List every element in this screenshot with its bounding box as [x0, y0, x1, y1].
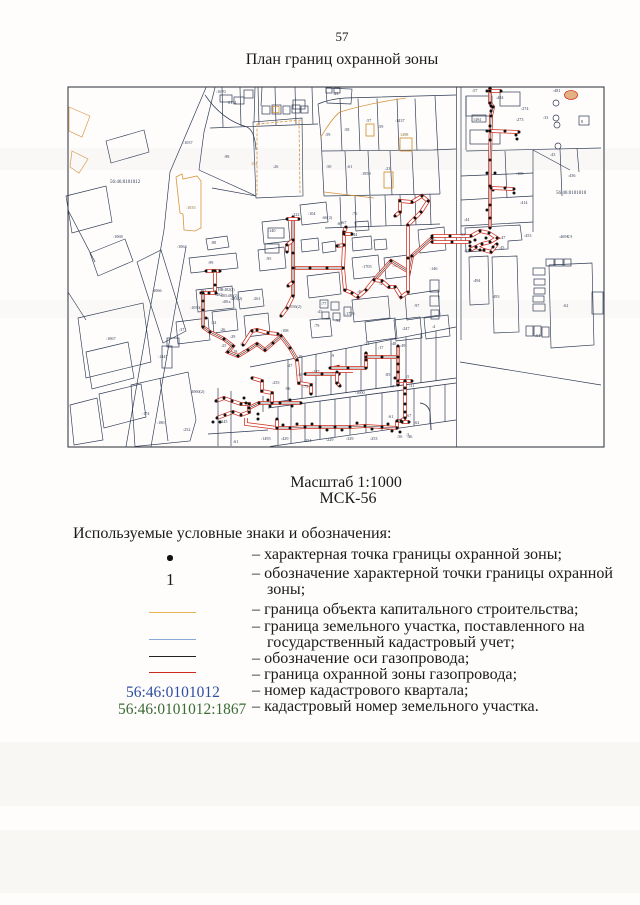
svg-text::33: :33 — [543, 115, 548, 120]
svg-text::180: :180 — [157, 420, 164, 425]
svg-text::66(2): :66(2) — [322, 215, 333, 220]
svg-text::273: :273 — [516, 117, 523, 122]
svg-text::56: :56 — [397, 434, 402, 439]
svg-text::24: :24 — [211, 320, 217, 325]
svg-text::252: :252 — [183, 427, 190, 432]
svg-text::65: :65 — [460, 232, 465, 237]
svg-text::414: :414 — [520, 200, 528, 205]
svg-text::146: :146 — [430, 266, 437, 271]
svg-text::7: :7 — [391, 384, 394, 389]
svg-text::9: :9 — [331, 353, 334, 358]
svg-text::1067: :1067 — [106, 336, 116, 341]
svg-text::95: :95 — [266, 256, 271, 261]
svg-text::9: :9 — [337, 243, 340, 248]
svg-text::481: :481 — [553, 88, 560, 93]
svg-text::5: :5 — [406, 374, 409, 379]
svg-text::1495: :1495 — [261, 436, 271, 441]
svg-text::40: :40 — [297, 372, 302, 377]
svg-text::59: :59 — [378, 124, 383, 129]
svg-text::453: :453 — [524, 233, 531, 238]
svg-text::58: :58 — [344, 127, 349, 132]
svg-text::108: :108 — [281, 328, 288, 333]
svg-text::47: :47 — [287, 363, 292, 368]
svg-text::484: :484 — [496, 95, 504, 100]
svg-text::456: :456 — [568, 173, 575, 178]
svg-text::429: :429 — [281, 436, 288, 441]
svg-text::31: :31 — [409, 383, 414, 388]
svg-text::79: :79 — [314, 323, 319, 328]
svg-text::99: :99 — [208, 260, 213, 265]
svg-text::44: :44 — [352, 232, 358, 237]
svg-text::1670: :1670 — [216, 89, 226, 94]
svg-text::1066: :1066 — [152, 288, 162, 293]
svg-text::229: :229 — [326, 437, 333, 442]
svg-text::43: :43 — [333, 91, 338, 96]
svg-text::61: :61 — [233, 439, 238, 444]
svg-text::59: :59 — [325, 132, 330, 137]
svg-text::24: :24 — [364, 341, 370, 346]
svg-text::104: :104 — [308, 211, 316, 216]
svg-text::49: :49 — [400, 343, 405, 348]
svg-text:1494: 1494 — [473, 117, 481, 122]
svg-text::75: :75 — [303, 384, 308, 389]
svg-text::29: :29 — [297, 354, 302, 359]
svg-text::37: :37 — [179, 327, 184, 332]
svg-text::494: :494 — [473, 278, 481, 283]
svg-text::1037: :1037 — [183, 140, 193, 145]
svg-text::64: :64 — [535, 333, 541, 338]
svg-text::1000: :1000 — [355, 390, 365, 395]
svg-text:56:46:0101010: 56:46:0101010 — [556, 191, 587, 196]
svg-text::1859: :1859 — [361, 171, 371, 176]
svg-text::96: :96 — [285, 386, 290, 391]
svg-text::3: :3 — [406, 432, 409, 437]
svg-text::61: :61 — [388, 414, 393, 419]
svg-text::48: :48 — [391, 341, 396, 346]
svg-text::67: :67 — [406, 413, 411, 418]
svg-text::255: :255 — [272, 380, 279, 385]
svg-text::1437: :1437 — [395, 118, 405, 123]
svg-text::45: :45 — [499, 245, 504, 250]
svg-text::247: :247 — [402, 326, 409, 331]
svg-text::17: :17 — [378, 345, 383, 350]
svg-text::140: :140 — [268, 228, 275, 233]
svg-text::94: :94 — [335, 318, 341, 323]
svg-text:1498: 1498 — [400, 132, 408, 137]
svg-text:8: 8 — [581, 119, 583, 124]
svg-text::1035: :1035 — [186, 205, 196, 210]
svg-text::88: :88 — [211, 240, 216, 245]
svg-text::274: :274 — [521, 106, 529, 111]
svg-text::85: :85 — [385, 372, 390, 377]
svg-text:8154: 8154 — [228, 100, 237, 105]
svg-text::29: :29 — [230, 334, 235, 339]
svg-text::47: :47 — [500, 235, 505, 240]
svg-text::253: :253 — [370, 436, 377, 441]
svg-text::174: :174 — [142, 411, 150, 416]
svg-text::1068: :1068 — [113, 234, 123, 239]
svg-text::1447: :1447 — [158, 354, 168, 359]
svg-text::26: :26 — [220, 327, 225, 332]
svg-text::62: :62 — [414, 420, 419, 425]
svg-text::67: :67 — [337, 221, 342, 226]
svg-text::44: :44 — [464, 217, 470, 222]
svg-text::63: :63 — [464, 248, 469, 253]
svg-text::25: :25 — [221, 343, 226, 348]
svg-text::329: :329 — [346, 436, 353, 441]
svg-text:56:46:0101012: 56:46:0101012 — [110, 180, 141, 185]
svg-text::1705: :1705 — [362, 264, 372, 269]
svg-text::57: :57 — [366, 118, 371, 123]
svg-text::245: :245 — [220, 419, 227, 424]
svg-text::469КЭ: :469КЭ — [559, 234, 572, 239]
svg-text::493: :493 — [492, 294, 499, 299]
svg-text::254: :254 — [304, 438, 312, 443]
svg-text::57: :57 — [472, 88, 477, 93]
svg-text::76: :76 — [352, 211, 357, 216]
svg-text::1064: :1064 — [177, 244, 187, 249]
svg-text::4: :4 — [432, 324, 436, 329]
svg-text::1060(2): :1060(2) — [190, 389, 205, 394]
